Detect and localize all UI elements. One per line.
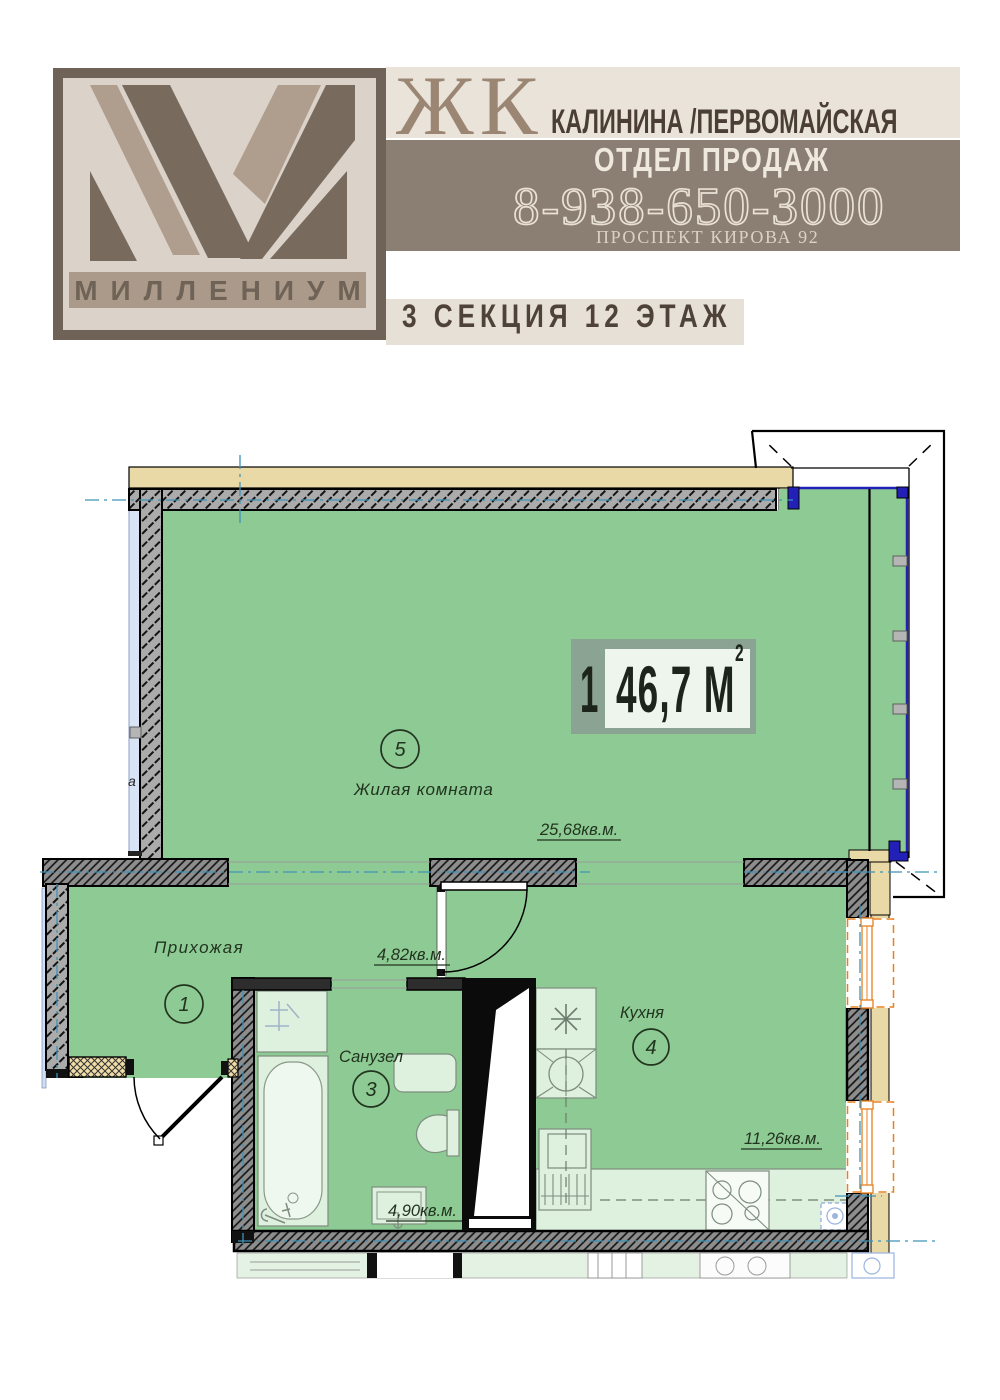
svg-text:а: а — [128, 773, 136, 789]
svg-text:4: 4 — [645, 1037, 656, 1059]
svg-text:Кухня: Кухня — [620, 1004, 664, 1022]
svg-text:Прихожая: Прихожая — [154, 938, 244, 957]
svg-text:11,26кв.м.: 11,26кв.м. — [744, 1130, 821, 1148]
svg-text:4,90кв.м.: 4,90кв.м. — [388, 1202, 457, 1220]
svg-text:Жилая комната: Жилая комната — [353, 780, 494, 799]
svg-text:2: 2 — [735, 641, 744, 667]
svg-text:1: 1 — [178, 994, 189, 1016]
svg-text:ПРОСПЕКТ КИРОВА 92: ПРОСПЕКТ КИРОВА 92 — [596, 227, 819, 247]
svg-text:3: 3 — [365, 1079, 376, 1101]
svg-text:3 СЕКЦИЯ 12 ЭТАЖ: 3 СЕКЦИЯ 12 ЭТАЖ — [402, 300, 731, 335]
svg-text:4,82кв.м.: 4,82кв.м. — [377, 946, 446, 964]
svg-text:КАЛИНИНА /ПЕРВОМАЙСКАЯ: КАЛИНИНА /ПЕРВОМАЙСКАЯ — [551, 102, 898, 142]
svg-text:ЖК: ЖК — [396, 58, 544, 153]
svg-text:ОТДЕЛ ПРОДАЖ: ОТДЕЛ ПРОДАЖ — [594, 142, 830, 178]
svg-text:МИЛЛЕНИУМ: МИЛЛЕНИУМ — [74, 275, 374, 306]
svg-text:Санузел: Санузел — [339, 1048, 403, 1066]
svg-text:46,7 М: 46,7 М — [616, 654, 736, 727]
svg-text:1: 1 — [580, 654, 598, 727]
svg-text:25,68кв.м.: 25,68кв.м. — [539, 821, 618, 839]
svg-text:5: 5 — [394, 739, 406, 761]
